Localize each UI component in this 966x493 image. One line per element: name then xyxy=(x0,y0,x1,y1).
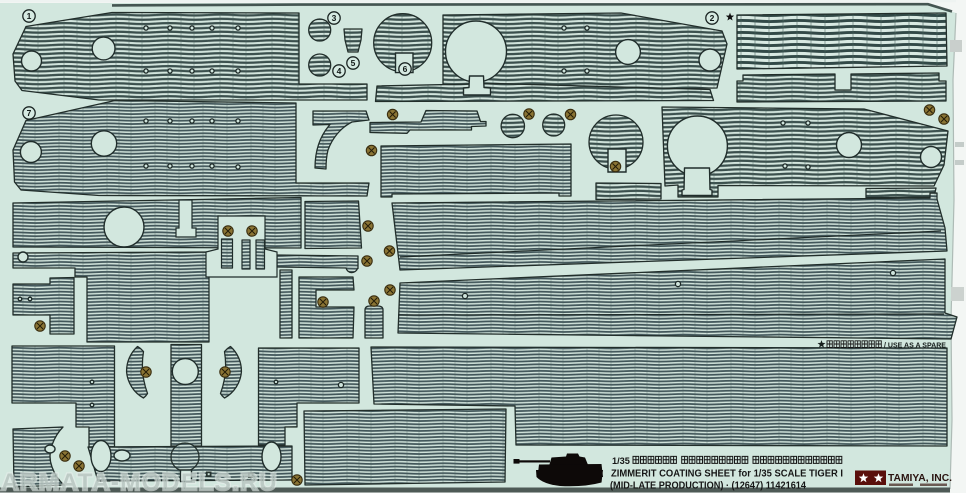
svg-text:TAMIYA, INC.: TAMIYA, INC. xyxy=(888,472,952,484)
svg-text:(MID-LATE PRODUCTION) · (12647: (MID-LATE PRODUCTION) · (12647) 11421614 xyxy=(610,481,806,492)
svg-text:ZIMMERIT COATING SHEET for 1/3: ZIMMERIT COATING SHEET for 1/35 SCALE TI… xyxy=(611,469,843,480)
svg-text:1/35: 1/35 xyxy=(612,456,630,466)
svg-text:6: 6 xyxy=(403,64,408,74)
svg-text:ARMATA-MODELS.RU: ARMATA-MODELS.RU xyxy=(1,469,278,493)
svg-text:/ USE AS A SPARE: / USE AS A SPARE xyxy=(884,340,946,349)
svg-text:4: 4 xyxy=(337,66,342,76)
svg-text:2: 2 xyxy=(710,13,715,23)
svg-text:3: 3 xyxy=(332,13,337,23)
svg-text:7: 7 xyxy=(27,108,32,118)
svg-text:1: 1 xyxy=(27,11,32,21)
svg-text:5: 5 xyxy=(351,58,356,68)
